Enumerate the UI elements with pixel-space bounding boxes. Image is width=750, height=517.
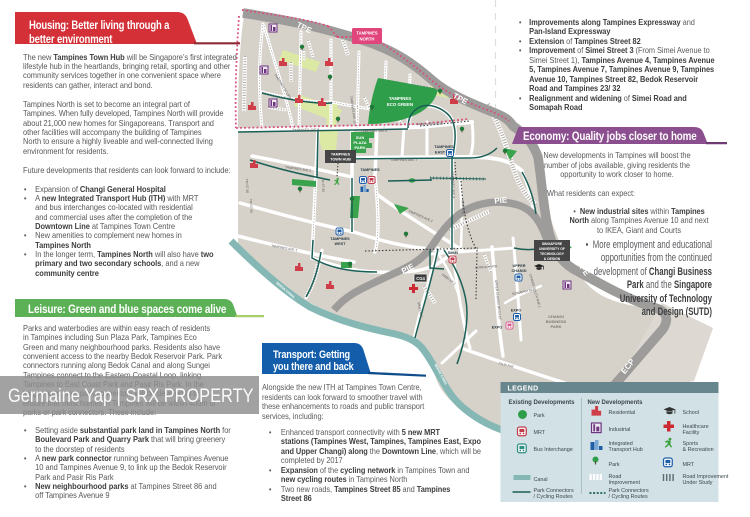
svg-text:/ Cycling Routes: / Cycling Routes bbox=[609, 494, 649, 500]
svg-text:Under Study: Under Study bbox=[683, 480, 713, 486]
svg-text:Improvement: Improvement bbox=[609, 480, 641, 486]
svg-text:Residential: Residential bbox=[609, 410, 636, 416]
svg-text:MRT: MRT bbox=[683, 462, 695, 468]
svg-text:Park: Park bbox=[609, 462, 620, 468]
svg-text:New Developments: New Developments bbox=[588, 400, 644, 406]
svg-text:Transport Hub: Transport Hub bbox=[609, 447, 643, 453]
svg-text:School: School bbox=[683, 410, 699, 416]
svg-text:Facility: Facility bbox=[683, 430, 700, 436]
svg-text:Existing Developments: Existing Developments bbox=[509, 400, 576, 406]
svg-text:& Recreation: & Recreation bbox=[683, 447, 714, 453]
svg-text:Industrial: Industrial bbox=[609, 427, 631, 433]
svg-text:Bus Interchange: Bus Interchange bbox=[534, 447, 573, 453]
svg-text:MRT: MRT bbox=[534, 430, 546, 436]
svg-text:Canal: Canal bbox=[534, 477, 548, 483]
svg-text:/ Cycling Routes: / Cycling Routes bbox=[534, 494, 574, 500]
svg-text:Park: Park bbox=[534, 413, 545, 419]
svg-text:LEGEND: LEGEND bbox=[508, 386, 539, 393]
